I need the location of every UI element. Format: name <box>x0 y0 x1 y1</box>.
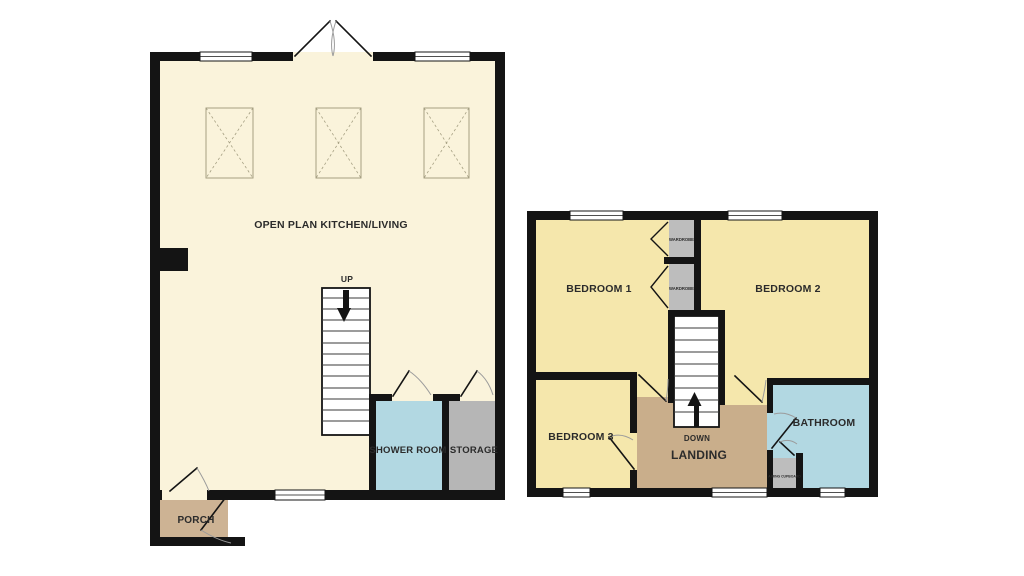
wall <box>767 378 878 385</box>
ground-floor-plan: OPEN PLAN KITCHEN/LIVING UP SHOWER ROOM … <box>150 21 505 546</box>
bedroom2-label: BEDROOM 2 <box>755 283 820 295</box>
wall <box>160 490 505 500</box>
floorplan-page: OPEN PLAN KITCHEN/LIVING UP SHOWER ROOM … <box>0 0 1024 576</box>
open-plan-label: OPEN PLAN KITCHEN/LIVING <box>254 219 408 231</box>
wall <box>150 537 245 546</box>
wardrobe1-label: WARDROBE <box>669 237 694 242</box>
down-label: DOWN <box>684 434 710 443</box>
wardrobe2-label: WARDROBE <box>669 286 694 291</box>
up-label: UP <box>341 274 353 284</box>
window <box>415 52 470 61</box>
wall <box>767 450 773 488</box>
window <box>820 488 845 497</box>
bedroom1-label: BEDROOM 1 <box>566 283 631 295</box>
wall <box>495 52 505 500</box>
shower-room-label: SHOWER ROOM <box>369 445 446 456</box>
bathroom-label: BATHROOM <box>793 417 856 429</box>
porch-door-opening <box>162 490 207 500</box>
staircase-down <box>674 316 719 427</box>
window <box>570 211 623 220</box>
wall <box>767 378 773 413</box>
window <box>200 52 252 61</box>
wall <box>694 220 701 310</box>
wall <box>536 372 635 380</box>
landing-label: LANDING <box>671 448 727 462</box>
airing-cupboard <box>773 458 796 488</box>
wall <box>369 394 376 490</box>
floorplan-drawing: OPEN PLAN KITCHEN/LIVING UP SHOWER ROOM … <box>0 0 1024 576</box>
window <box>563 488 590 497</box>
french-doors <box>295 21 371 56</box>
window <box>728 211 782 220</box>
wall <box>442 394 449 490</box>
window <box>712 488 767 497</box>
wall <box>630 470 637 488</box>
porch-label: PORCH <box>177 515 214 526</box>
wall <box>668 310 674 403</box>
window <box>275 490 325 500</box>
wall <box>527 211 536 497</box>
french-door-opening <box>293 52 373 61</box>
staircase-up <box>322 288 370 435</box>
wall <box>664 257 694 264</box>
wall <box>668 310 725 316</box>
wall <box>630 372 637 433</box>
wall <box>150 52 160 546</box>
airing-cupboard-label: AIRING CUPBOARD <box>768 475 801 479</box>
chimney-breast <box>160 248 188 271</box>
storage-label: STORAGE <box>450 445 498 456</box>
wall <box>796 453 803 488</box>
wall <box>869 211 878 497</box>
first-floor-plan: BEDROOM 1 BEDROOM 2 BEDROOM 3 DOWN LANDI… <box>527 211 878 497</box>
wall <box>719 310 725 405</box>
bedroom3-label: BEDROOM 3 <box>548 431 613 443</box>
